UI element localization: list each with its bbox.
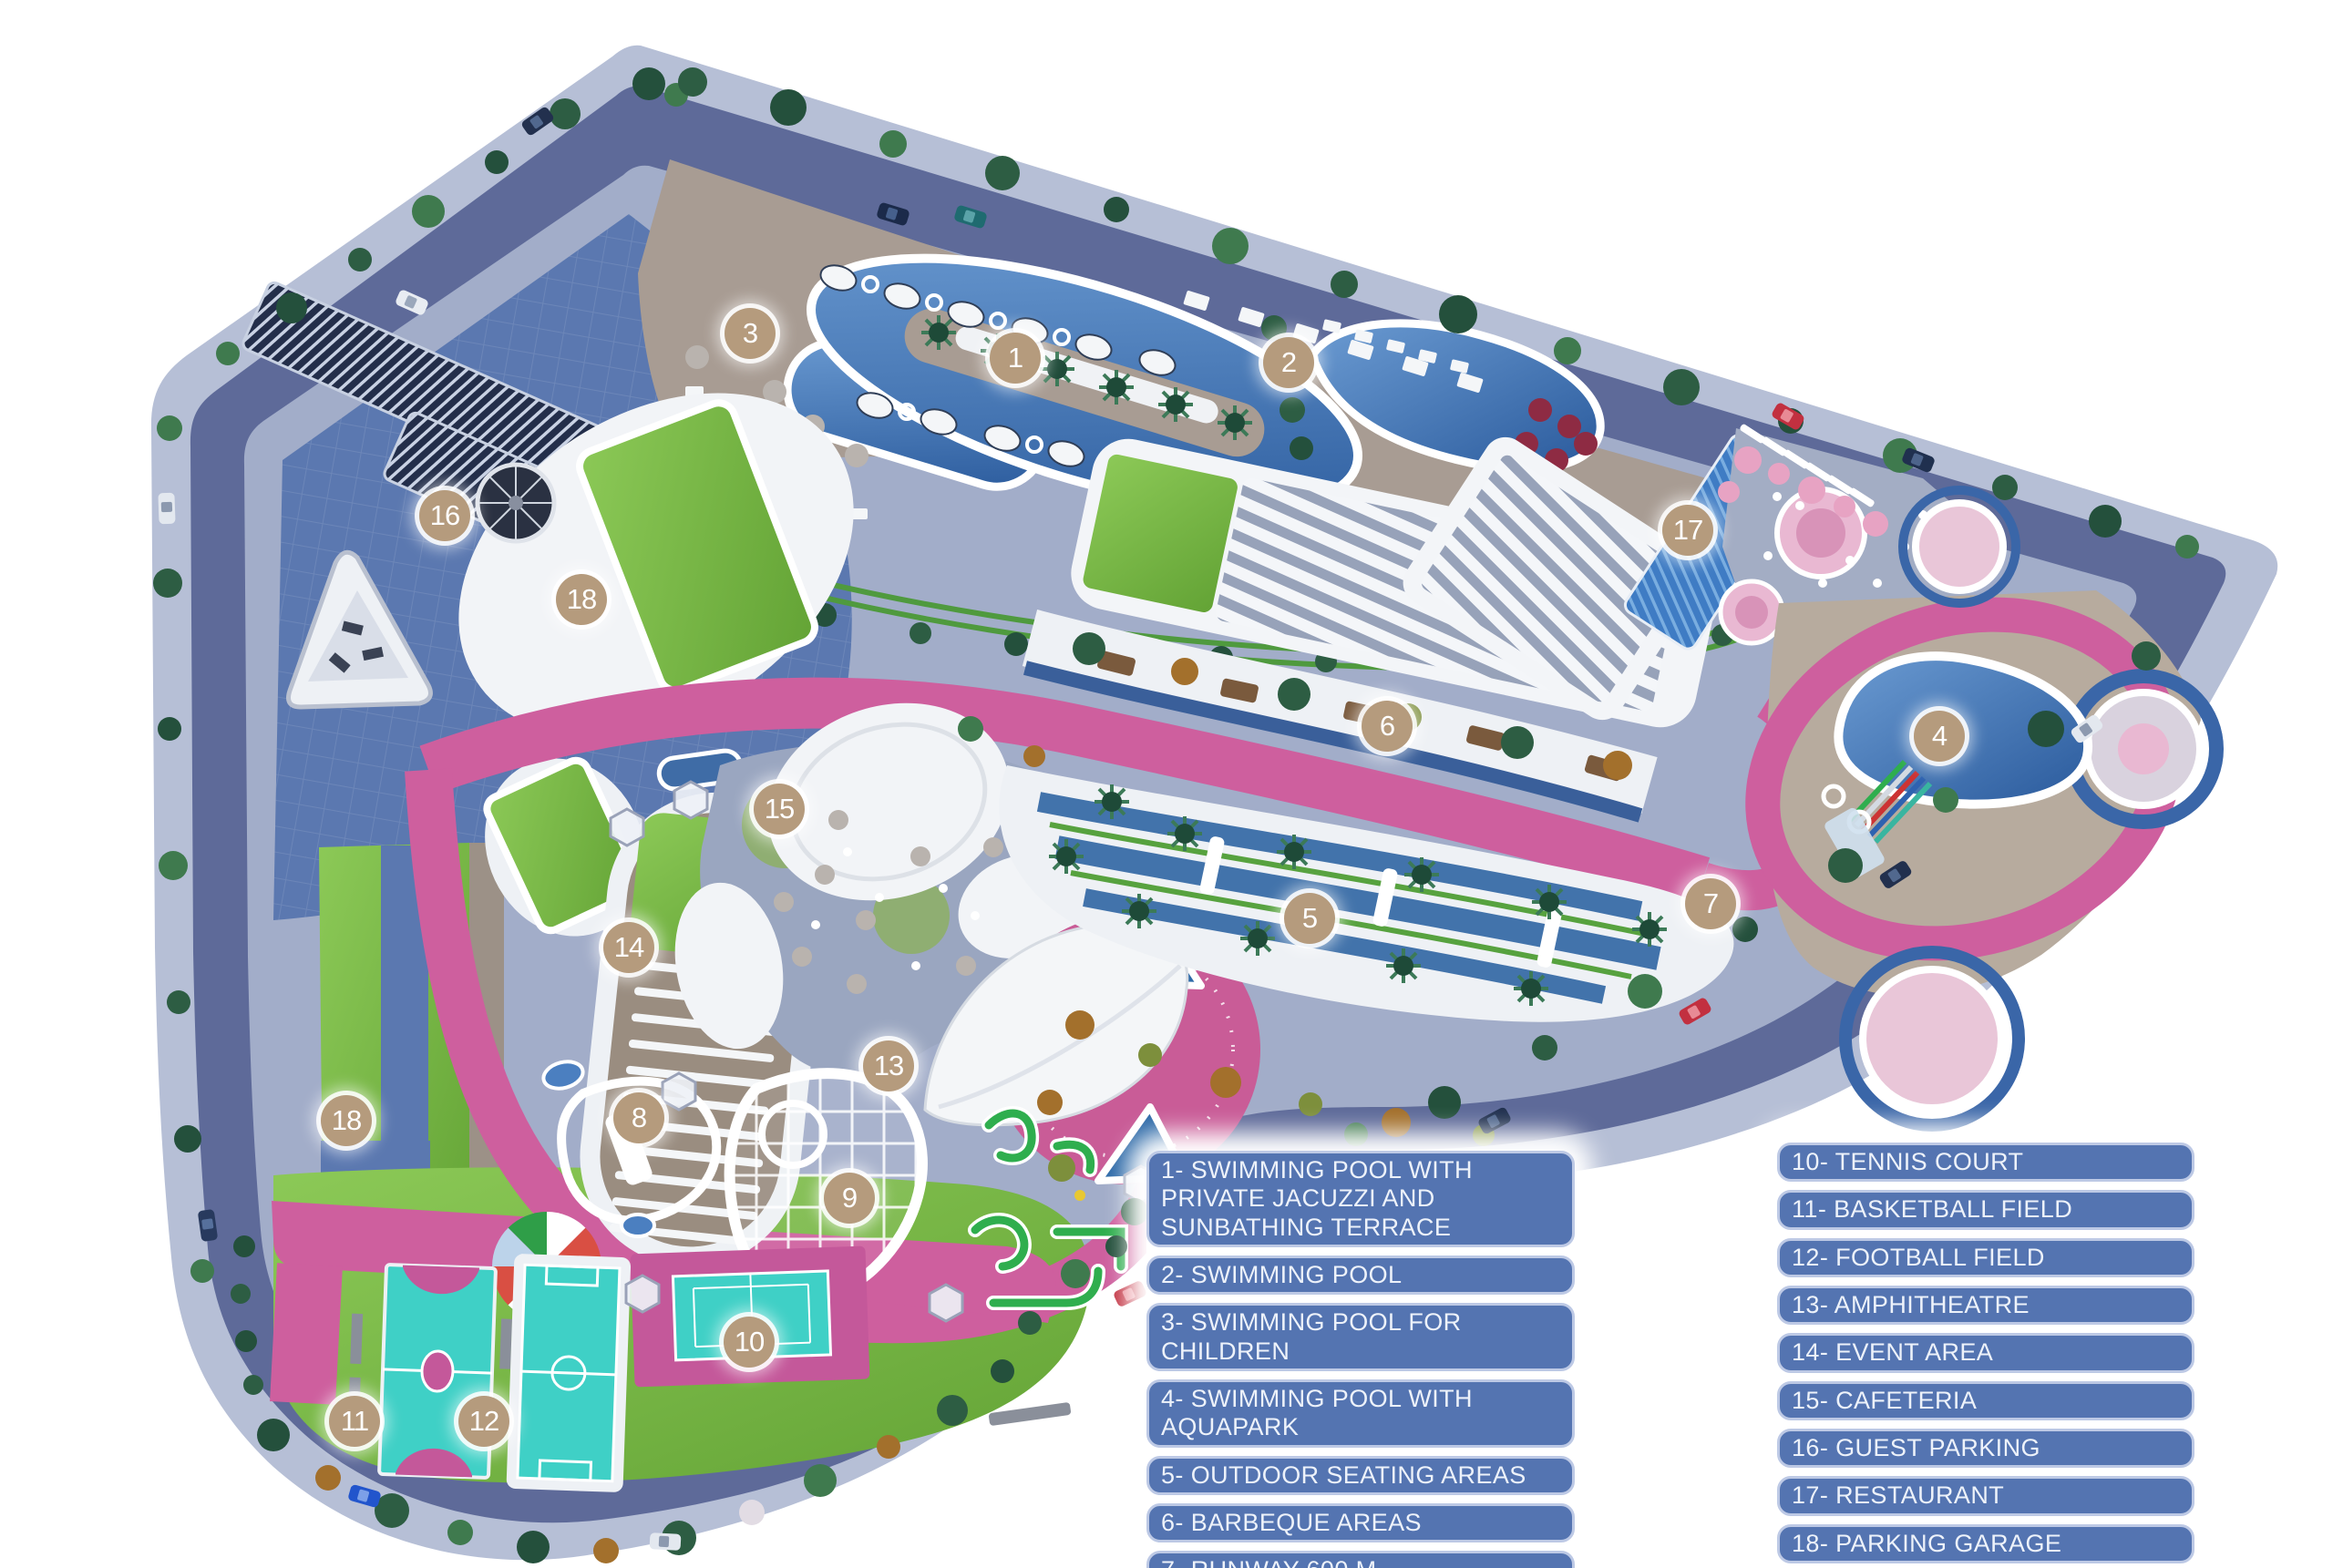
map-marker-13: 13: [863, 1040, 914, 1091]
legend-col-right: 10- TENNIS COURT11- BASKETBALL FIELD12- …: [1777, 1143, 2194, 1563]
legend-item: 15- CAFETERIA: [1777, 1381, 2194, 1420]
legend-item: 18- PARKING GARAGE: [1777, 1524, 2194, 1563]
map-marker-8: 8: [613, 1092, 664, 1143]
map-marker-12: 12: [458, 1396, 509, 1447]
legend-item: 12- FOOTBALL FIELD: [1777, 1238, 2194, 1277]
map-marker-18: 18: [321, 1095, 372, 1146]
legend-item: 17- RESTAURANT: [1777, 1476, 2194, 1515]
map-marker-11: 11: [329, 1396, 380, 1447]
map-marker-5: 5: [1284, 893, 1335, 944]
map-marker-2: 2: [1263, 337, 1314, 388]
legend-item: 7- RUNWAY 600 M: [1146, 1551, 1575, 1568]
map-marker-6: 6: [1362, 701, 1413, 752]
legend-item: 2- SWIMMING POOL: [1146, 1255, 1575, 1295]
legend-item: 5- OUTDOOR SEATING AREAS: [1146, 1456, 1575, 1495]
legend-item: 3- SWIMMING POOL FOR CHILDREN: [1146, 1303, 1575, 1371]
map-marker-18: 18: [556, 574, 607, 625]
legend-item: 11- BASKETBALL FIELD: [1777, 1190, 2194, 1229]
map-marker-1: 1: [990, 333, 1041, 384]
map-marker-15: 15: [754, 784, 805, 835]
legend-item: 10- TENNIS COURT: [1777, 1143, 2194, 1182]
site-plan-page: { "legend": { "left": [ "1- SWIMMING POO…: [0, 0, 2333, 1568]
map-marker-10: 10: [724, 1317, 775, 1368]
legend-item: 14- EVENT AREA: [1777, 1333, 2194, 1372]
legend-item: 4- SWIMMING POOL WITH AQUAPARK: [1146, 1379, 1575, 1448]
legend-item: 1- SWIMMING POOL WITH PRIVATE JACUZZI AN…: [1146, 1151, 1575, 1247]
legend-item: 16- GUEST PARKING: [1777, 1429, 2194, 1468]
legend-item: 6- BARBEQUE AREAS: [1146, 1503, 1575, 1542]
legend-item: 13- AMPHITHEATRE: [1777, 1286, 2194, 1325]
map-marker-4: 4: [1914, 711, 1965, 762]
map-marker-7: 7: [1685, 878, 1736, 929]
map-marker-17: 17: [1662, 505, 1713, 556]
map-marker-9: 9: [824, 1173, 875, 1224]
map-marker-3: 3: [725, 308, 776, 359]
legend-col-left: 1- SWIMMING POOL WITH PRIVATE JACUZZI AN…: [1146, 1151, 1575, 1568]
map-marker-14: 14: [603, 922, 654, 973]
map-marker-16: 16: [419, 490, 470, 541]
